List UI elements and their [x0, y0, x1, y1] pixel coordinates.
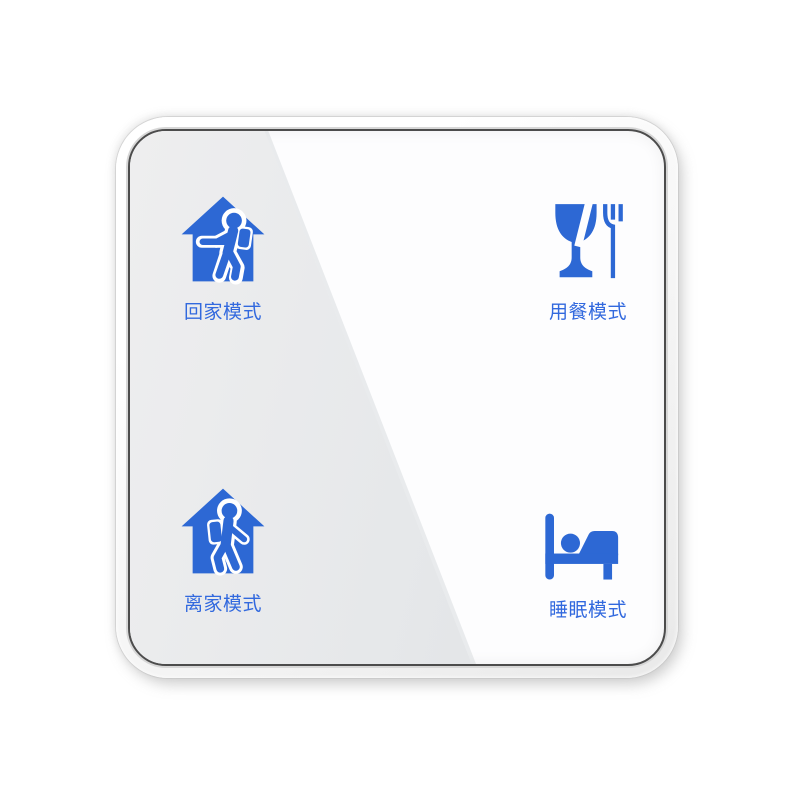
house-person-entering-icon [177, 193, 269, 285]
scene-label: 用餐模式 [549, 297, 627, 324]
scene-button-dining[interactable]: 用餐模式 [515, 199, 661, 324]
scene-button-leaving-home[interactable]: 离家模式 [150, 485, 296, 616]
page-background: 回家模式 用餐模式 [0, 0, 800, 800]
house-person-leaving-icon [177, 485, 269, 577]
bed-sleep-icon [536, 505, 624, 583]
scene-button-sleep[interactable]: 睡眠模式 [515, 505, 661, 622]
switch-panel-glass: 回家模式 用餐模式 [128, 129, 666, 666]
scene-label: 睡眠模式 [549, 595, 627, 622]
scene-button-coming-home[interactable]: 回家模式 [150, 193, 296, 324]
glass-and-fork-icon [545, 199, 631, 285]
switch-panel-bezel: 回家模式 用餐模式 [116, 117, 678, 678]
scene-label: 回家模式 [184, 297, 262, 324]
scene-label: 离家模式 [184, 589, 262, 616]
